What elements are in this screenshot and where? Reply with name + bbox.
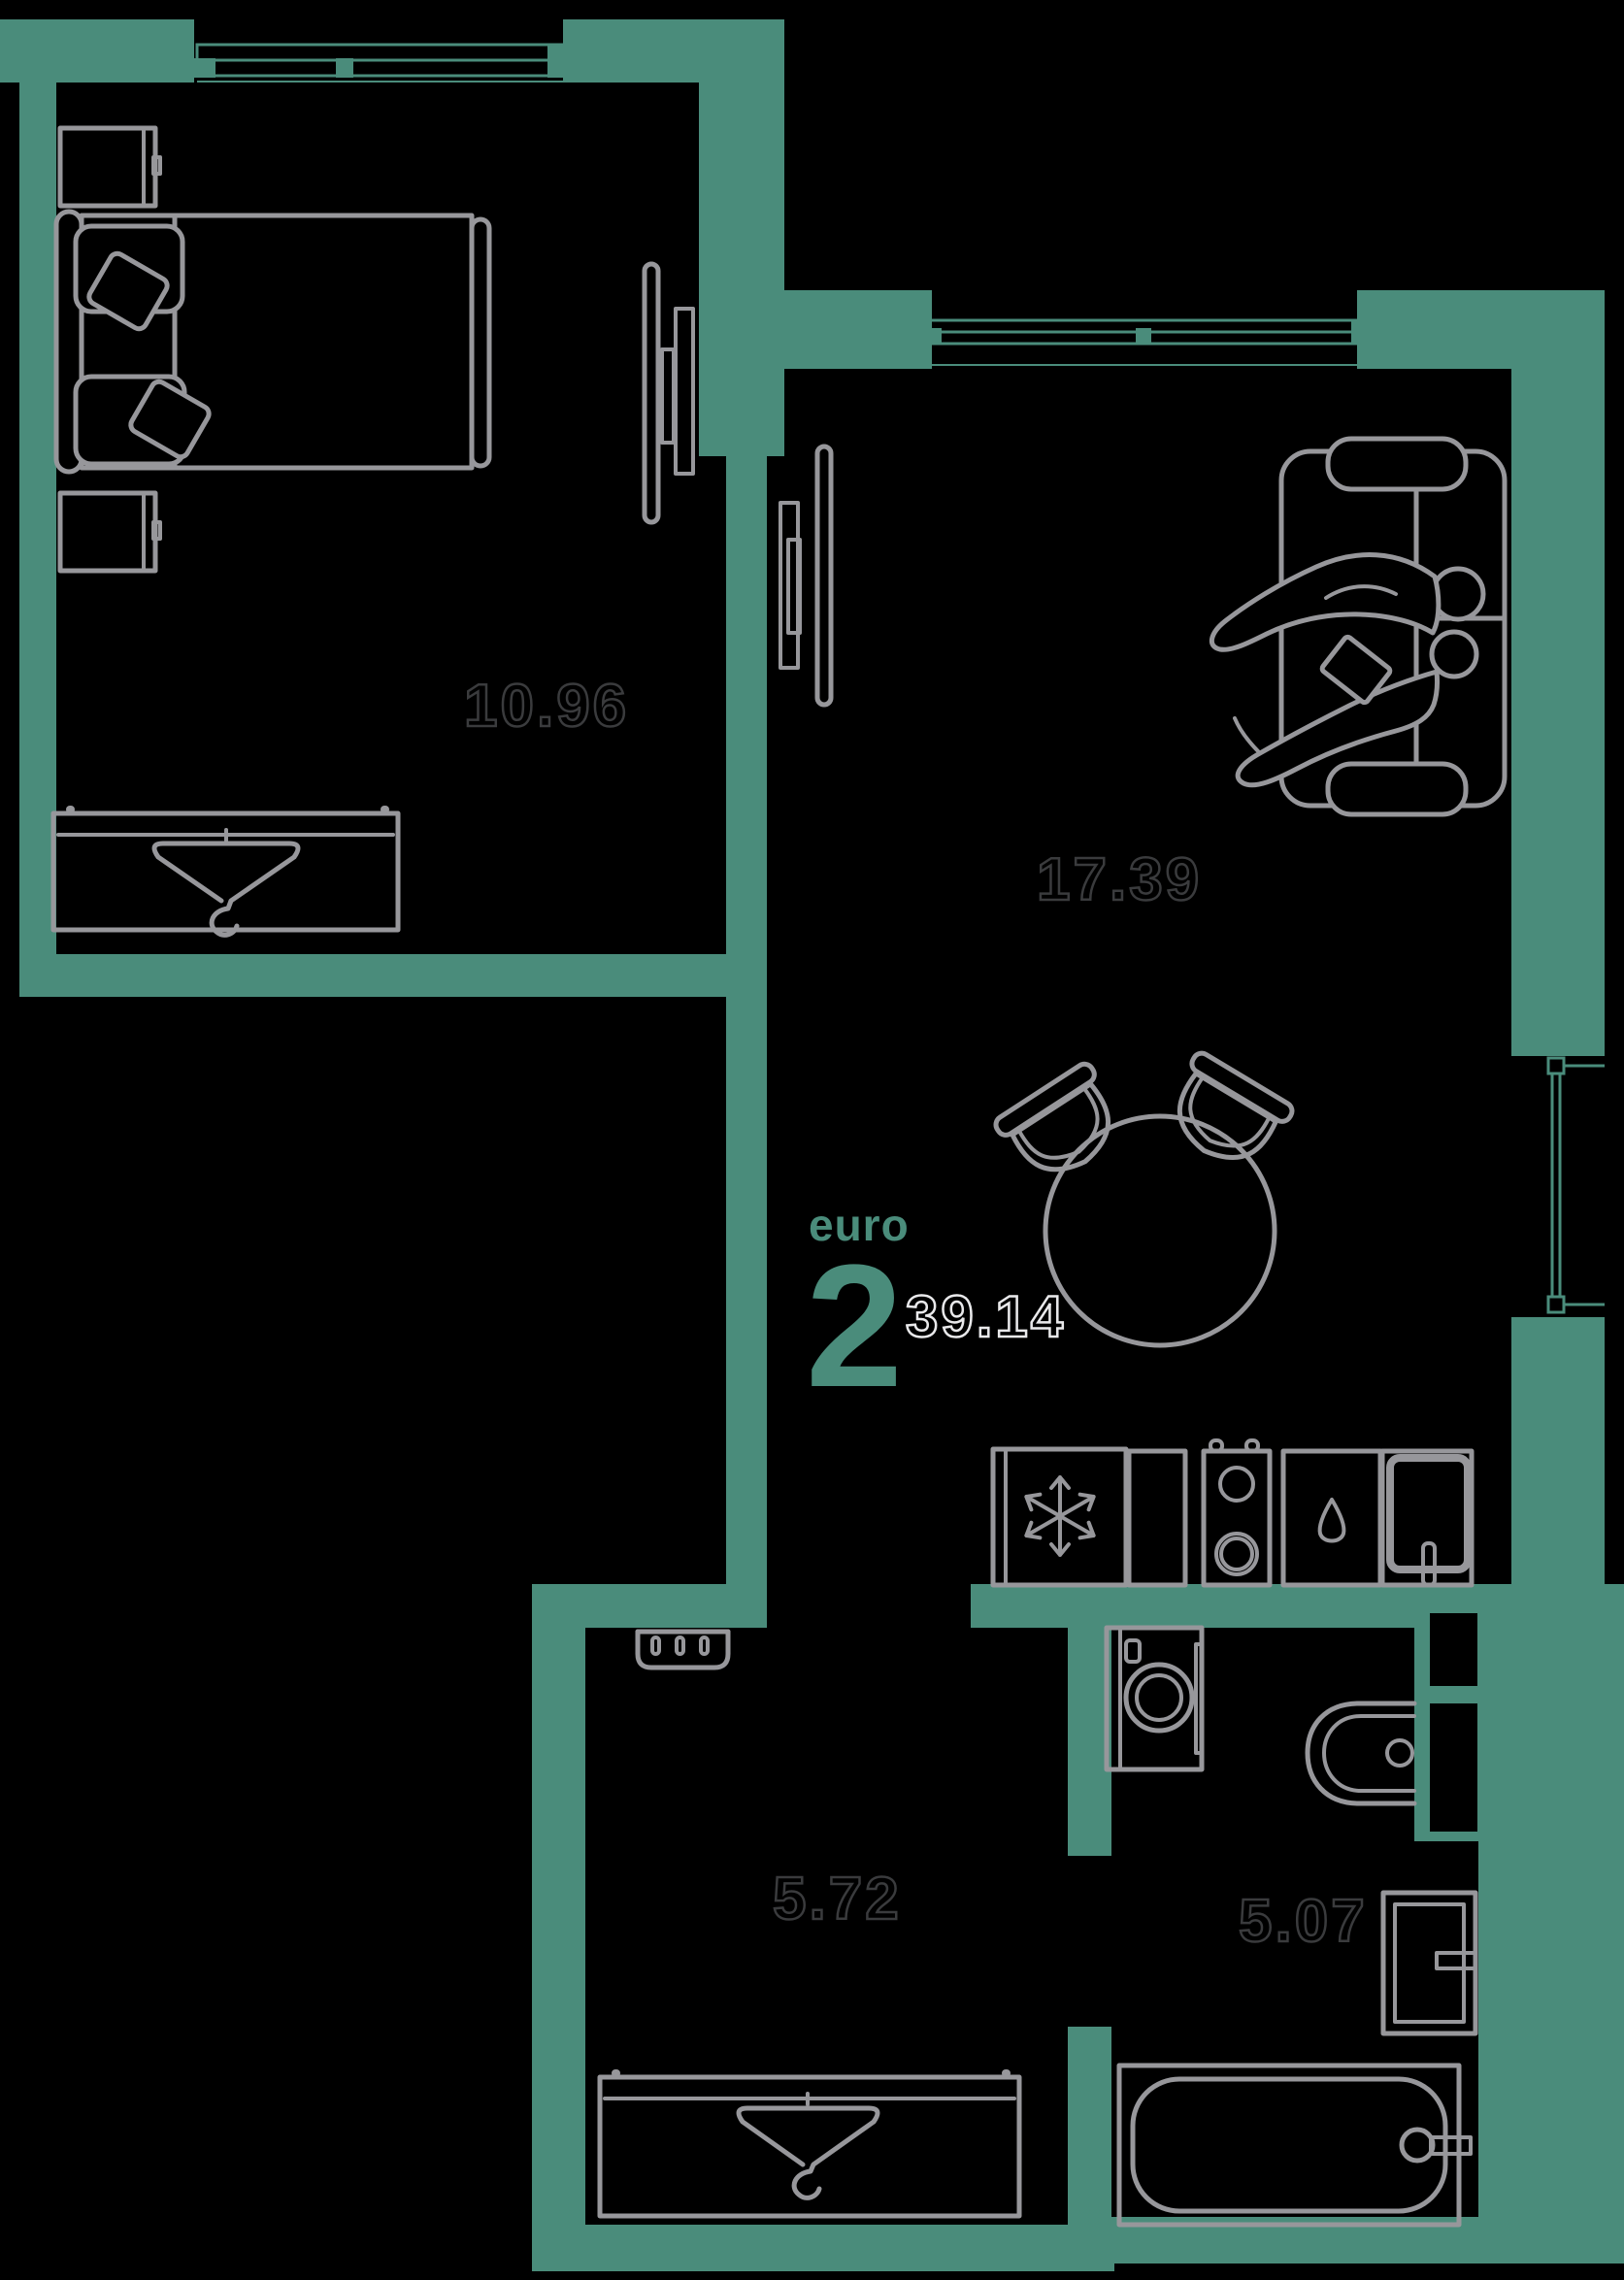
balcony-window-icon — [1548, 1058, 1605, 1312]
wardrobe-icon — [600, 2069, 1019, 2216]
bedroom-window-icon — [192, 45, 569, 82]
stove-burners-icon — [1204, 1440, 1270, 1585]
toilet-icon — [1308, 1703, 1414, 1803]
total-area-label: 39.14 — [906, 1284, 1066, 1349]
apartment-type-badge: euro 2 39.14 — [806, 1200, 1066, 1424]
living-room-window-icon — [922, 320, 1373, 365]
fridge-icon — [993, 1449, 1126, 1585]
bathroom-sink-icon — [1383, 1893, 1475, 2033]
bathroom-area-label: 5.07 — [1239, 1888, 1368, 1955]
kitchen-counter — [1283, 1451, 1380, 1585]
hallway-area-label: 5.72 — [773, 1866, 902, 1933]
chair-icon — [1156, 1050, 1296, 1179]
people-on-sofa-icon — [1211, 555, 1483, 785]
kitchen-counter — [1129, 1451, 1185, 1585]
wardrobe-icon — [53, 806, 398, 935]
kitchen-sink-icon — [1382, 1451, 1472, 1585]
bathtub-icon — [1119, 2065, 1471, 2225]
pillow-icon — [76, 377, 212, 464]
hanger-icon — [739, 2108, 878, 2197]
tv-icon — [780, 446, 831, 705]
washing-machine-icon — [1107, 1628, 1202, 1769]
pillow-icon — [76, 226, 182, 332]
living-kitchen-area-label: 17.39 — [1037, 846, 1202, 913]
nightstand-icon — [60, 128, 160, 206]
shaft-niche — [1430, 1613, 1477, 1686]
walls — [0, 19, 1624, 2271]
floor-plan: 10.96 17.39 5.72 5.07 euro 2 39.14 — [0, 0, 1624, 2280]
bed-icon — [56, 212, 489, 472]
snowflake-icon — [1022, 1477, 1098, 1555]
nightstand-icon — [60, 493, 160, 571]
shaft-niche — [1430, 1703, 1477, 1832]
bedroom-area-label: 10.96 — [464, 673, 629, 740]
shoe-rack-icon — [638, 1632, 728, 1668]
rooms-count-label: 2 — [806, 1229, 903, 1424]
hanger-icon — [154, 843, 298, 935]
tv-icon — [645, 264, 693, 522]
